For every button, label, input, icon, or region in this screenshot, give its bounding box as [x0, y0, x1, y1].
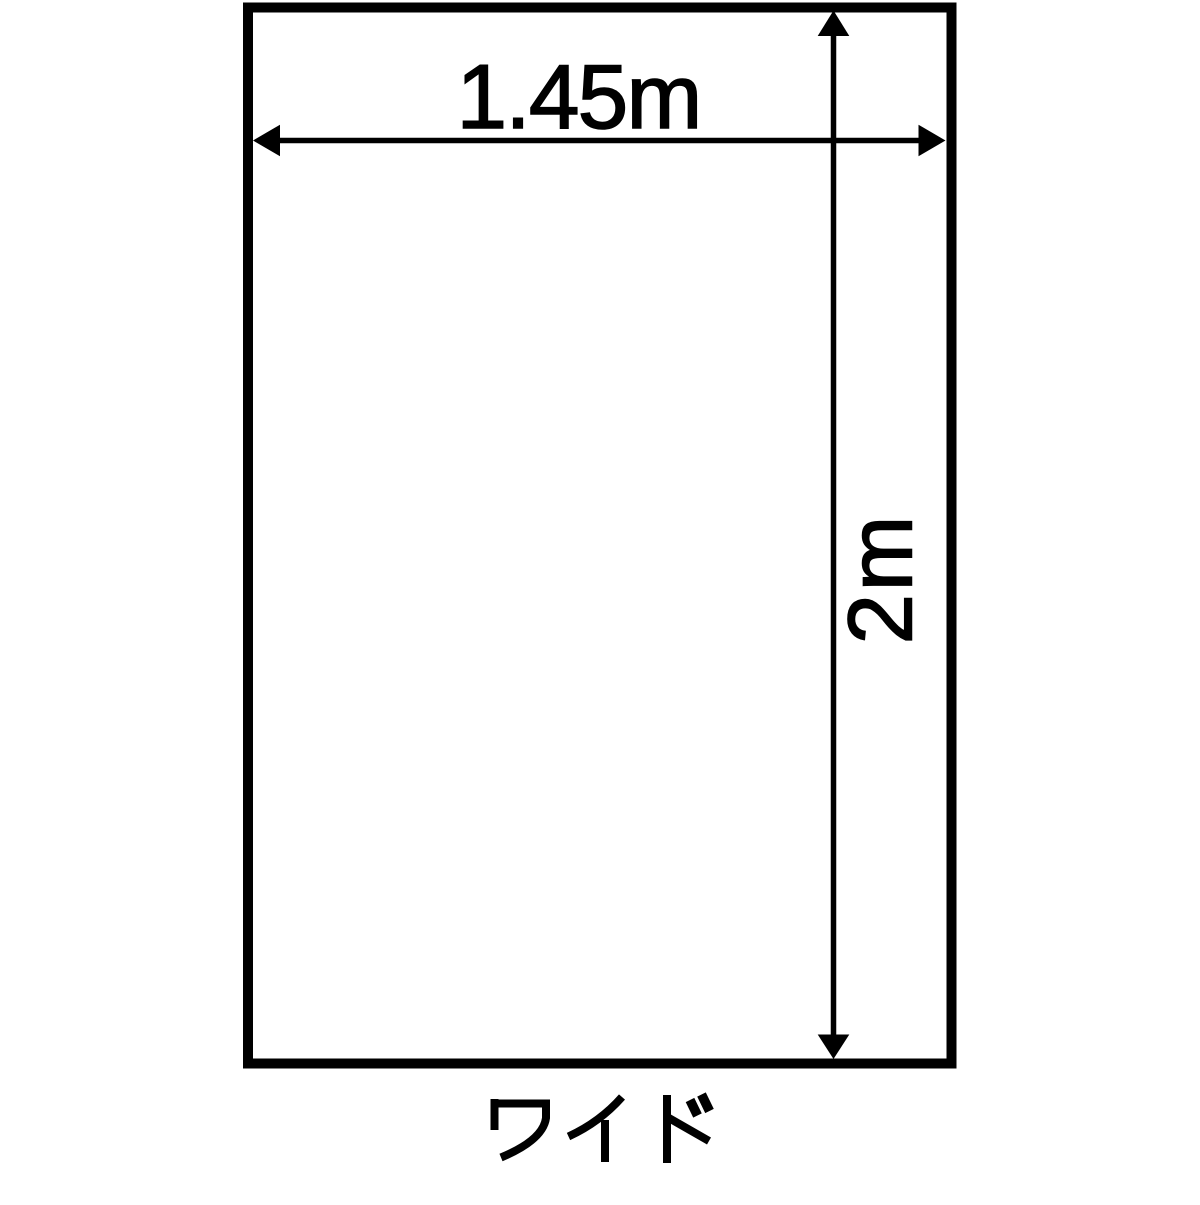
svg-text:2m: 2m — [830, 513, 931, 644]
svg-text:1.45m: 1.45m — [457, 47, 701, 148]
